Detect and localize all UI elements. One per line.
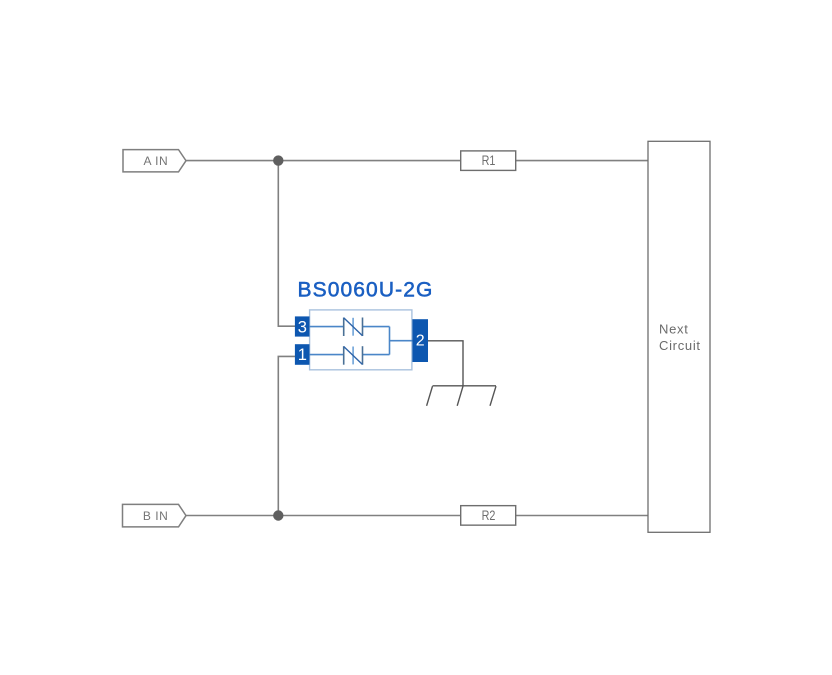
svg-text:R2: R2: [482, 508, 496, 524]
svg-text:2: 2: [416, 332, 425, 349]
svg-text:R1: R1: [482, 153, 496, 169]
svg-text:A IN: A IN: [143, 154, 168, 168]
svg-text:B IN: B IN: [143, 509, 168, 523]
svg-text:BS0060U-2G: BS0060U-2G: [298, 278, 434, 301]
svg-text:3: 3: [298, 318, 307, 336]
svg-text:Circuit: Circuit: [659, 338, 701, 353]
svg-text:1: 1: [298, 346, 307, 364]
svg-text:Next: Next: [659, 321, 689, 336]
